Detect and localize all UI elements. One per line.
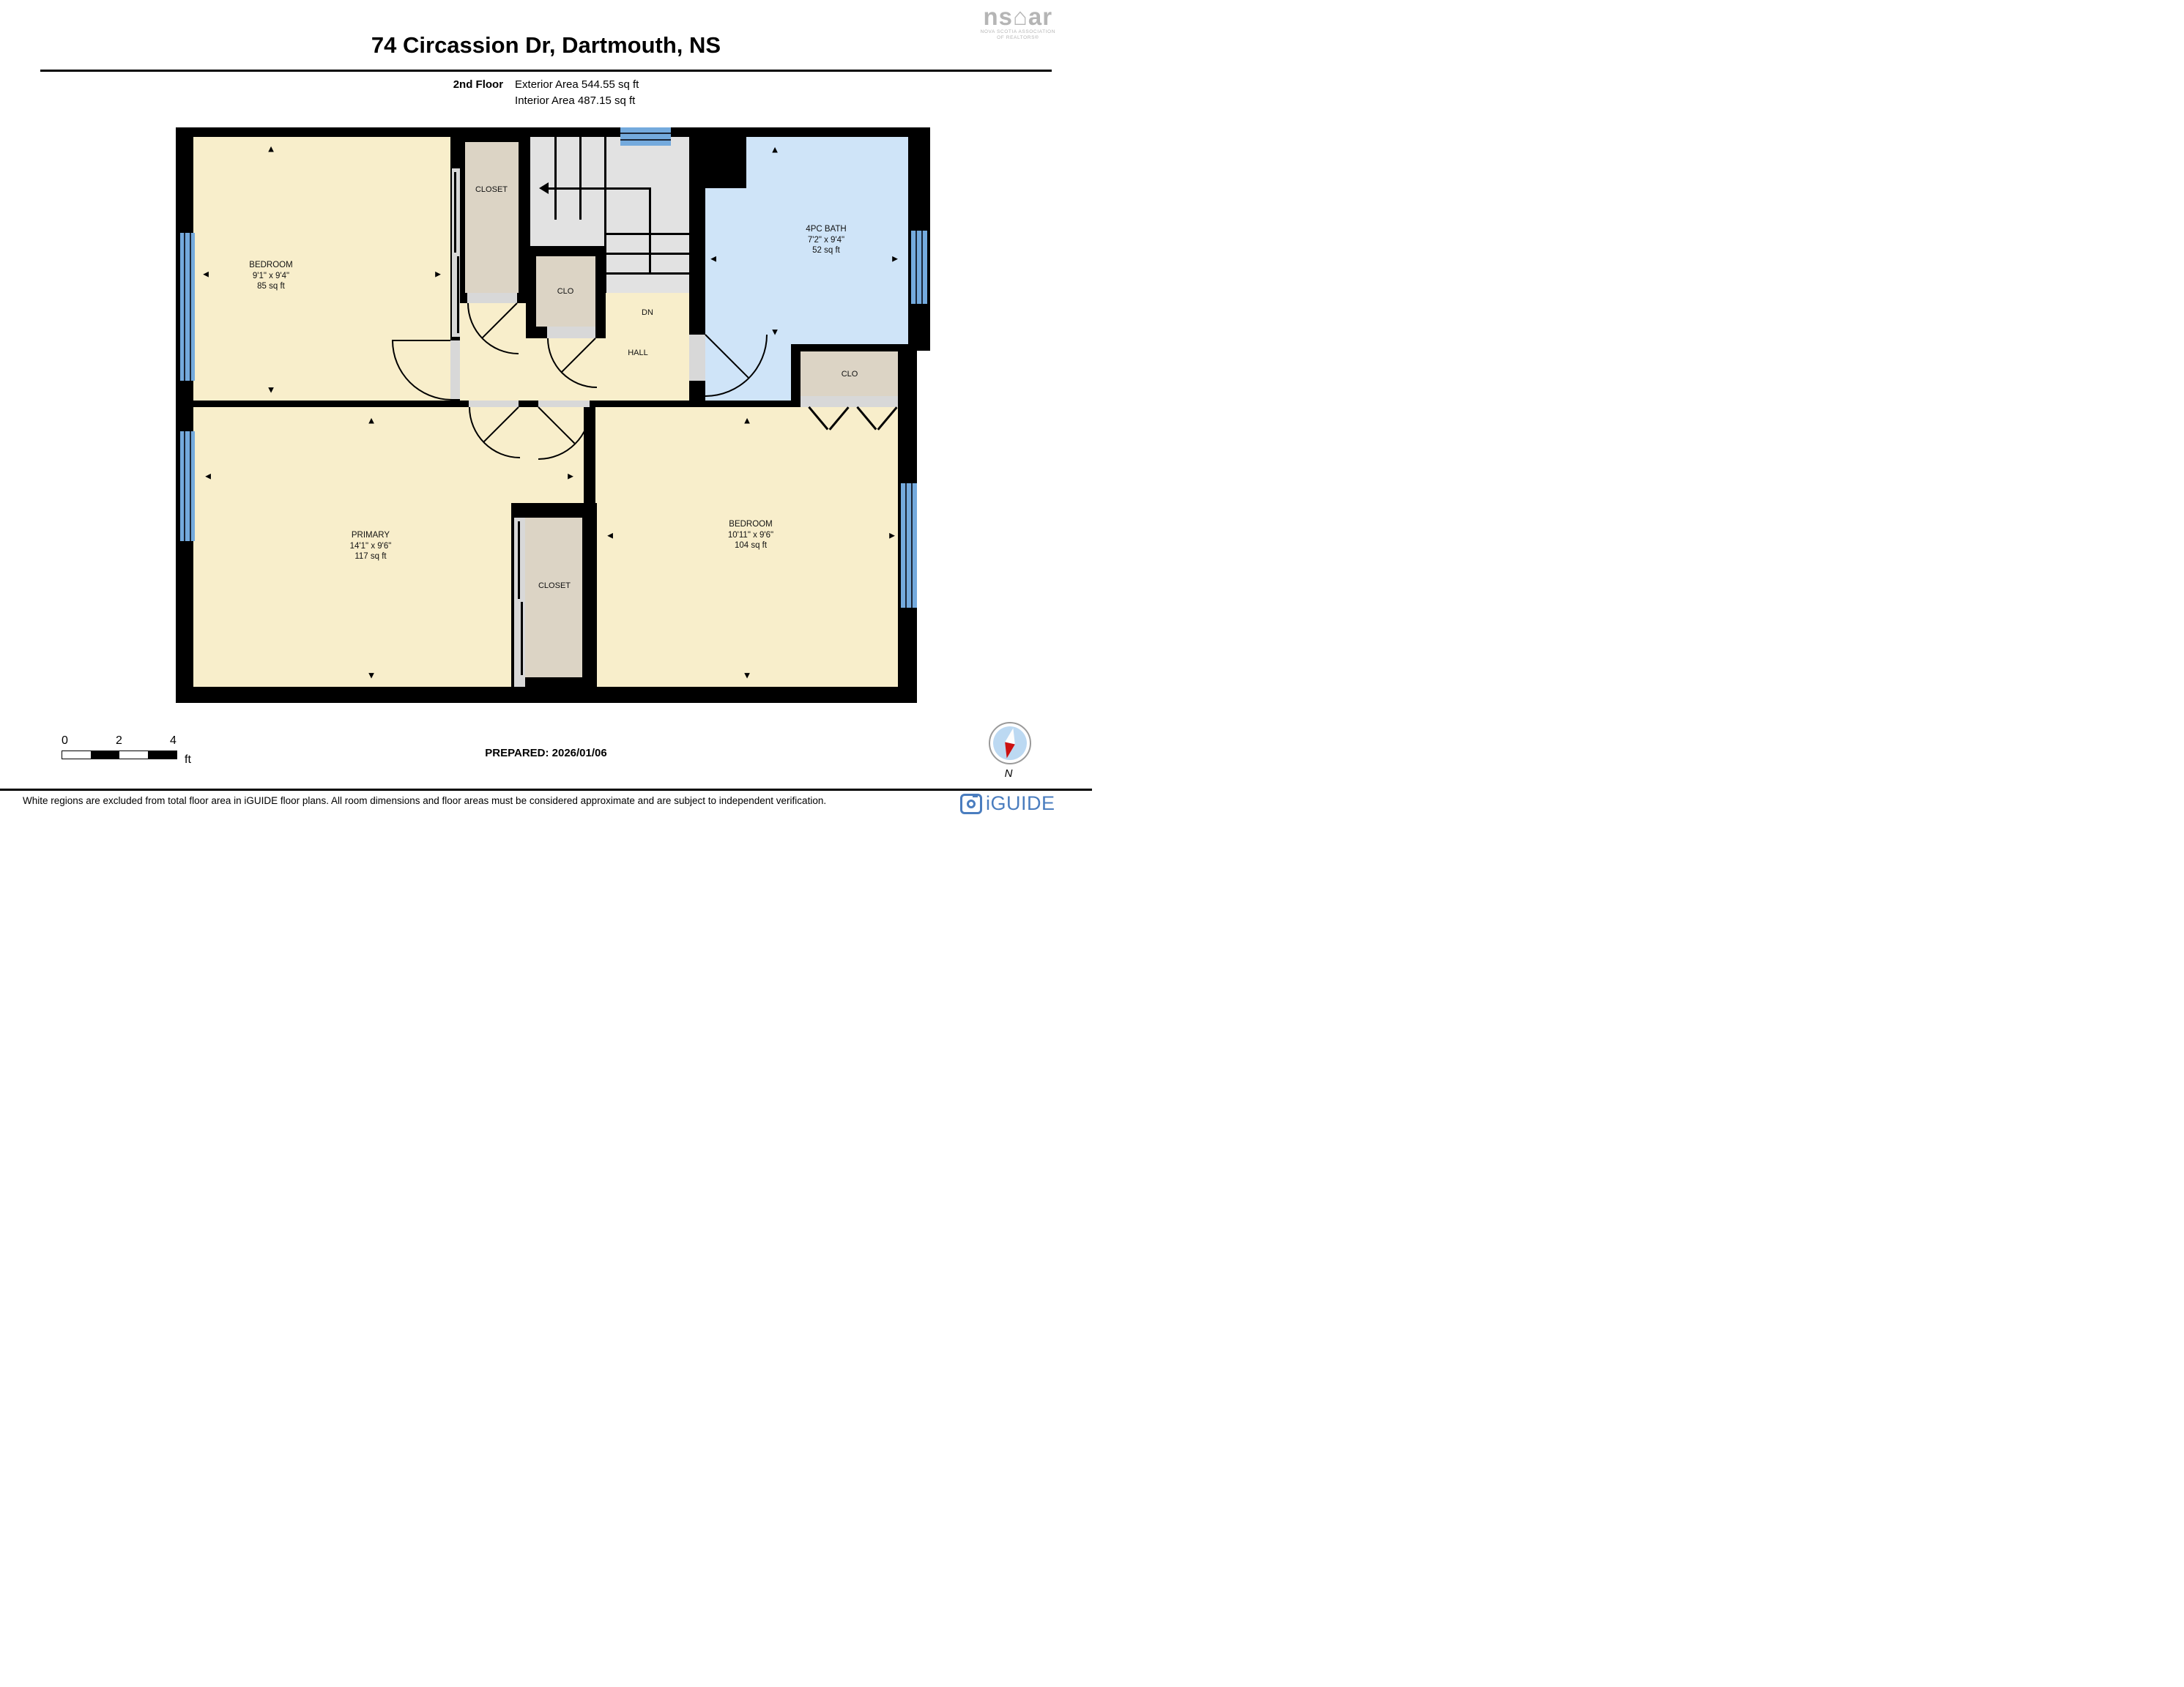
doorway-clo-mid (547, 327, 595, 338)
stair-arrow-head-icon (539, 182, 549, 194)
closet-bottom-slider-track (514, 518, 525, 687)
dim-arrow-up-icon: ▲ (267, 144, 276, 154)
dim-arrow-right-icon: ► (566, 472, 576, 481)
compass-north-label: N (1005, 767, 1013, 780)
stair-step-line (606, 253, 689, 255)
doorway-bedroom-br (538, 401, 590, 407)
nsar-logo: ns⌂ar NOVA SCOTIA ASSOCIATION OF REALTOR… (981, 6, 1055, 42)
window-bath (911, 231, 927, 304)
scale-tick-4: 4 (170, 734, 177, 748)
stair-arrow-tail-h (548, 187, 650, 190)
dim-arrow-up-icon: ▲ (367, 416, 376, 425)
closet-slider-panel-1 (518, 521, 520, 599)
floor-label: 2nd Floor (453, 78, 503, 111)
iguide-camera-icon (960, 794, 982, 814)
header-divider (40, 70, 1052, 72)
stair-step-line (606, 272, 689, 275)
scale-tick-2: 2 (116, 734, 122, 748)
dim-arrow-up-icon: ▲ (743, 416, 752, 425)
page-title: 74 Circassion Dr, Dartmouth, NS (0, 32, 1092, 59)
doorway-closet-top (467, 293, 517, 303)
stair-step-line (579, 137, 582, 220)
nsar-line1: NOVA SCOTIA ASSOCIATION (981, 29, 1055, 35)
floor-summary: 2nd Floor Exterior Area 544.55 sq ft Int… (0, 78, 1092, 111)
room-closet-top (465, 142, 519, 293)
dim-arrow-down-icon: ▼ (367, 671, 376, 680)
label-bath: 4PC BATH 7'2" x 9'4" 52 sq ft (806, 224, 846, 256)
stair-flight-divider (604, 137, 606, 293)
doorway-primary (469, 401, 519, 407)
window-primary (180, 431, 195, 541)
label-primary: PRIMARY 14'1" x 9'6" 117 sq ft (350, 530, 392, 562)
room-closet-bottom (525, 518, 582, 677)
dim-arrow-left-icon: ◄ (606, 531, 615, 540)
closet-top-slider-panel-2 (457, 256, 459, 333)
stair-step-line (606, 233, 689, 235)
nsar-wordmark-icon: ns⌂ar (981, 6, 1055, 28)
label-hall: HALL (628, 348, 648, 358)
door-leaf-bedroom-tl (392, 340, 450, 341)
stair-arrow-tail-v (649, 187, 651, 274)
compass-icon (989, 722, 1031, 764)
label-bedroom-br: BEDROOM 10'11" x 9'6" 104 sq ft (728, 519, 773, 551)
label-closet-bottom: CLOSET (538, 581, 571, 591)
plan-cutout (917, 351, 930, 703)
prepared-date: PREPARED: 2026/01/06 (0, 747, 1092, 759)
interior-area: Interior Area 487.15 sq ft (515, 94, 639, 107)
dim-arrow-right-icon: ► (891, 254, 900, 264)
window-stairwell-top (620, 127, 671, 146)
dim-arrow-right-icon: ► (888, 531, 897, 540)
window-bedroom-tl (180, 233, 195, 381)
dim-arrow-left-icon: ◄ (201, 269, 211, 279)
dim-arrow-down-icon: ▼ (770, 327, 780, 337)
window-bedroom-br (901, 483, 917, 608)
nsar-line2: OF REALTORS® (981, 35, 1055, 41)
label-bedroom-tl: BEDROOM 9'1" x 9'4" 85 sq ft (249, 260, 292, 292)
label-clo-right: CLO (842, 369, 858, 379)
doorway-bath (689, 335, 705, 381)
dim-arrow-up-icon: ▲ (770, 145, 780, 154)
dim-arrow-right-icon: ► (434, 269, 443, 279)
dim-arrow-left-icon: ◄ (709, 254, 718, 264)
room-hall-dn-strip (606, 293, 689, 303)
footer-divider (0, 789, 1092, 791)
closet-slider-panel-2 (521, 602, 523, 675)
scale-tick-0: 0 (62, 734, 68, 748)
floor-plan-page: 74 Circassion Dr, Dartmouth, NS 2nd Floo… (0, 0, 1092, 843)
dim-arrow-down-icon: ▼ (267, 385, 276, 395)
label-closet-top: CLOSET (475, 185, 508, 195)
room-bath-left (705, 188, 746, 344)
closet-top-slider-panel-1 (454, 172, 456, 253)
exterior-area: Exterior Area 544.55 sq ft (515, 78, 639, 91)
label-stairs-dn: DN (642, 308, 653, 318)
iguide-wordmark: iGUIDE (986, 792, 1055, 815)
label-clo-mid: CLO (557, 286, 574, 297)
dim-arrow-down-icon: ▼ (743, 671, 752, 680)
disclaimer-text: White regions are excluded from total fl… (23, 795, 826, 806)
iguide-logo: iGUIDE (960, 792, 1055, 815)
clo-right-track (801, 396, 898, 407)
dim-arrow-left-icon: ◄ (204, 472, 213, 481)
stair-step-line (554, 137, 557, 220)
